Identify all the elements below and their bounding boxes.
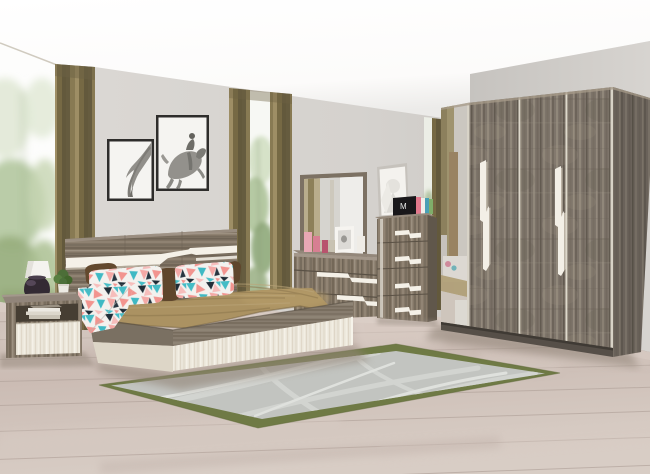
svg-text:M: M (400, 202, 407, 211)
